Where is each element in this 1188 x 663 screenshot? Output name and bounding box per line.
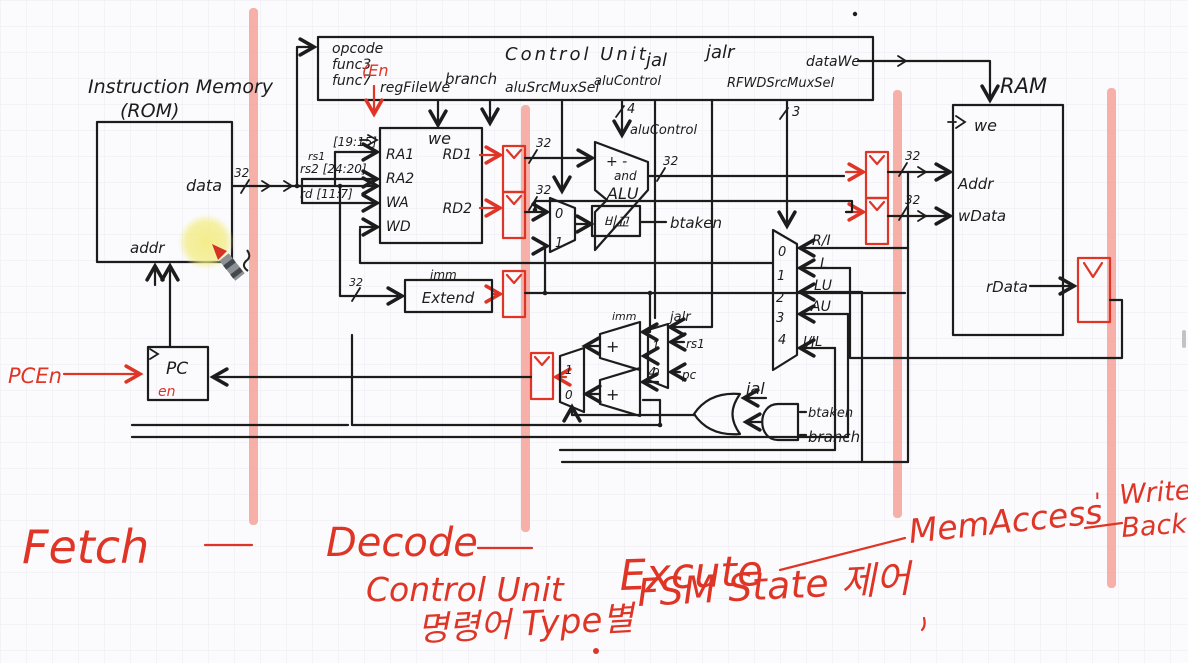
btaken-input-label: btaken (808, 406, 853, 421)
mux-input-0: 0 (565, 388, 573, 402)
rf-rd2-label: RD2 (443, 201, 473, 217)
cu-regfilewe-label: regFileWe (380, 80, 450, 96)
four-constant-label: 4 (648, 366, 656, 381)
datapath-drawing: Instruction Memory (ROM) data addr PC en… (0, 0, 1188, 663)
wire-junction (533, 208, 538, 213)
bus-width-label: 32 (536, 136, 551, 150)
comparator-label: 비교 (603, 215, 630, 231)
fetch-stage-label: Fetch (22, 520, 149, 574)
mux-input-2: 2 (776, 291, 784, 306)
cu-jal-label: jal (643, 50, 667, 71)
rfwdsel-width: 3 (792, 105, 800, 120)
rf-ra2-label: RA2 (386, 171, 414, 187)
alu-ops1-label: + - (606, 154, 627, 170)
imm-small-label: imm (612, 310, 637, 323)
rf-we-label: we (428, 129, 451, 148)
alucontrol-near-alu-label: aluControl (630, 123, 697, 138)
btaken-label: btaken (670, 214, 722, 232)
im-addr-port-label: addr (130, 239, 165, 257)
mux-input-0: 0 (555, 207, 563, 222)
wb-sel-ri-label: R/I (812, 233, 831, 249)
writeback-label-line2: Back (1120, 508, 1188, 544)
cu-branch-label: branch (445, 70, 497, 88)
wb-sel-l-label: L (820, 256, 828, 272)
rs1-source-label: rs1 (686, 337, 705, 351)
pen-band-icon (228, 262, 231, 266)
rf-wa-label: WA (386, 195, 409, 211)
cu-jalr-label: jalr (703, 42, 736, 63)
pen-band-icon (235, 271, 238, 275)
bus-width-label: 32 (349, 276, 363, 289)
cu-datawe-label: dataWe (806, 54, 860, 70)
mux-input-1: 1 (555, 236, 563, 251)
bus-width-label: 32 (905, 193, 920, 207)
whiteboard-canvas[interactable]: Instruction Memory (ROM) data addr PC en… (0, 0, 1188, 663)
rs2-bits-label: rs2 [24:20] (300, 162, 367, 176)
mux-input-1: 1 (565, 363, 573, 377)
rd-bits-label: rd [11:7] (300, 187, 353, 201)
rf-wd-label: WD (386, 219, 411, 235)
bus-width-label: 32 (536, 183, 551, 197)
period-mark (593, 648, 599, 654)
ram-addr-label: Addr (957, 175, 994, 193)
mux-input-1: 1 (652, 339, 660, 353)
bus-width-label: 32 (234, 166, 249, 180)
pc-label: PC (166, 359, 188, 379)
writeback-label-line1: Write (1118, 475, 1188, 511)
ram-we-label: we (974, 116, 997, 135)
apostrophe-mark: ' (1094, 488, 1101, 516)
cu-alusrc-label: aluSrcMuxSel (505, 80, 599, 96)
alu-ops2-label: and (614, 169, 637, 183)
mux-input-0: 0 (778, 245, 786, 260)
bus-width-label: 32 (663, 154, 678, 168)
adder-plus-label: + (606, 385, 619, 404)
wb-sel-au-label: AU (810, 299, 831, 315)
imm-label: imm (430, 268, 457, 282)
ram-title: RAM (1000, 74, 1047, 98)
rf-ra1-label: RA1 (386, 147, 414, 163)
pcen-label: PCEn (8, 364, 62, 388)
instruction-memory-title: Instruction Memory (88, 76, 274, 98)
rs1-bits-label: [19:15] (333, 135, 377, 149)
adder-plus-label: + (606, 337, 619, 356)
mux-input-4: 4 (778, 333, 786, 348)
rf-rd1-label: RD1 (443, 147, 472, 163)
alucontrol-width: 4 (627, 102, 635, 117)
stray-dot (853, 12, 857, 16)
ram-wdata-label: wData (958, 207, 1006, 225)
mux-input-3: 3 (776, 311, 784, 326)
bus-width-label: 32 (905, 149, 920, 163)
ram-rdata-label: rData (986, 278, 1028, 296)
cu-opcode-label: opcode (332, 41, 383, 57)
im-data-port-label: data (186, 176, 222, 195)
extend-label: Extend (422, 289, 475, 307)
jalr-select-label: jalr (668, 310, 692, 325)
wire-junction (658, 423, 663, 428)
pc-source-label: pc (681, 368, 697, 382)
execute-mem-divider (893, 90, 902, 518)
instruction-memory-subtitle: (ROM) (120, 100, 179, 122)
pc-en-label: en (158, 384, 176, 400)
mem-wb-divider (1107, 88, 1116, 588)
wire-junction (543, 291, 548, 296)
cu-en-note: (En (362, 61, 389, 80)
control-unit-title: Control Unit (505, 44, 649, 65)
mux-input-1: 1 (777, 269, 785, 284)
cu-rfwdsel-label: RFWDSrcMuxSel (727, 76, 835, 91)
scrollbar-thumb[interactable] (1182, 330, 1186, 348)
jal-input-label: jal (744, 379, 765, 398)
decode-stage-label: Decode (326, 520, 478, 566)
cu-alucontrol-label: aluControl (594, 74, 661, 89)
